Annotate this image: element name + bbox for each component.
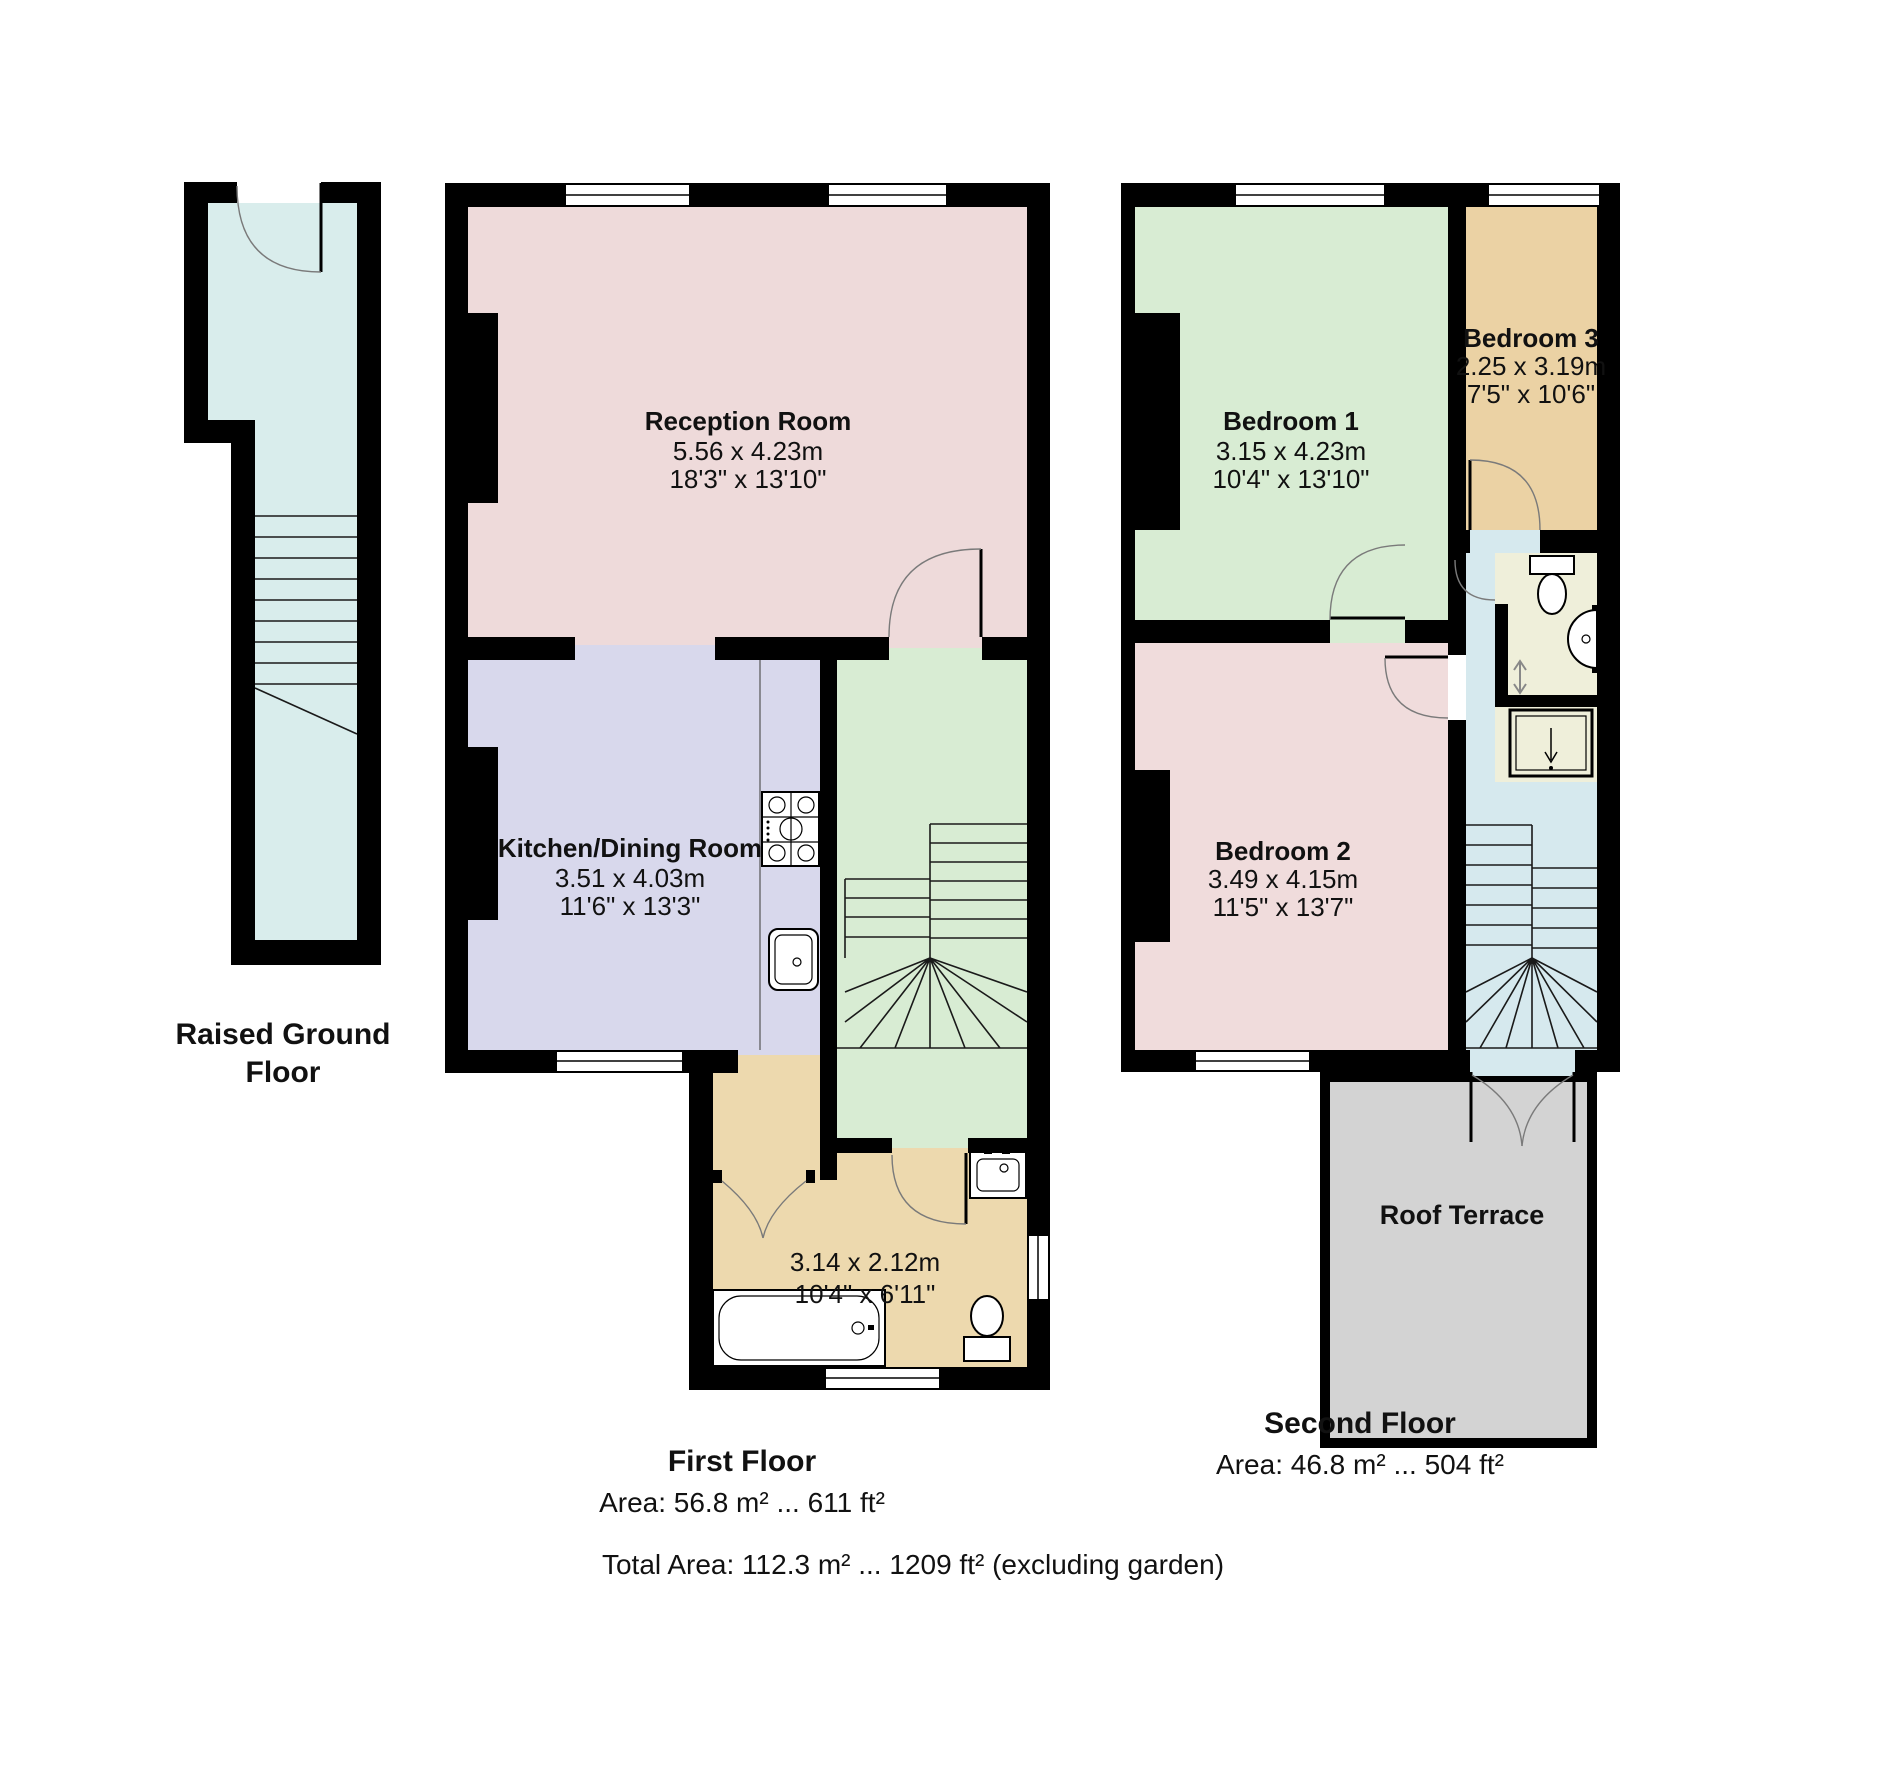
kitchen-label: Kitchen/Dining Room bbox=[498, 833, 762, 863]
bedroom2-dim-m: 3.49 x 4.15m bbox=[1208, 864, 1358, 894]
window-bathroom-side bbox=[1028, 1235, 1049, 1300]
second-floor-label: Second Floor bbox=[1264, 1407, 1456, 1440]
bedroom2-label: Bedroom 2 bbox=[1215, 836, 1351, 866]
window-reception-2 bbox=[828, 184, 947, 206]
hallway-floor bbox=[208, 203, 357, 940]
bedroom3-dim-ft: 7'5" x 10'6" bbox=[1467, 379, 1595, 409]
reception-room-label: Reception Room bbox=[645, 406, 852, 436]
window-bathroom-bottom bbox=[825, 1368, 940, 1389]
first-floor-label: First Floor bbox=[668, 1445, 817, 1478]
first-floor-area: Area: 56.8 m² ... 611 ft² bbox=[599, 1487, 885, 1518]
bedroom3-dim-m: 2.25 x 3.19m bbox=[1456, 351, 1606, 381]
kitchen-dim-ft: 11'6" x 13'3" bbox=[560, 891, 701, 921]
roof-terrace-floor bbox=[1325, 1077, 1592, 1443]
window-bedroom2 bbox=[1195, 1051, 1310, 1071]
floorplan-drawing: Reception Room 5.56 x 4.23m 18'3" x 13'1… bbox=[0, 0, 1898, 1775]
window-bedroom3 bbox=[1488, 184, 1600, 206]
roof-terrace-label: Roof Terrace bbox=[1380, 1200, 1545, 1230]
floorplan-first-floor bbox=[445, 183, 1050, 1390]
kitchen-dim-m: 3.51 x 4.03m bbox=[555, 863, 705, 893]
floorplan-raised-ground bbox=[184, 182, 381, 965]
bathroom1-dim-ft: 10'4" x 6'11" bbox=[795, 1279, 936, 1309]
terrace-threshold bbox=[1470, 1050, 1575, 1076]
raised-ground-label-line1: Raised Ground bbox=[175, 1018, 390, 1051]
raised-ground-label-line2: Floor bbox=[246, 1056, 321, 1089]
window-reception-1 bbox=[565, 184, 690, 206]
bedroom1-dim-m: 3.15 x 4.23m bbox=[1216, 436, 1366, 466]
reception-room-dim-m: 5.56 x 4.23m bbox=[673, 436, 823, 466]
total-area-label: Total Area: 112.3 m² ... 1209 ft² (exclu… bbox=[602, 1549, 1224, 1580]
window-bedroom1 bbox=[1235, 184, 1385, 206]
bathroom1-dim-m: 3.14 x 2.12m bbox=[790, 1247, 940, 1277]
window-kitchen bbox=[556, 1051, 683, 1072]
floorplan-page: Reception Room 5.56 x 4.23m 18'3" x 13'1… bbox=[0, 0, 1898, 1775]
kitchen-sink-icon bbox=[769, 929, 818, 990]
reception-room-dim-ft: 18'3" x 13'10" bbox=[669, 464, 826, 494]
bathroom-sink-icon bbox=[970, 1147, 1026, 1198]
bedroom2-dim-ft: 11'5" x 13'7" bbox=[1213, 892, 1354, 922]
stove-icon bbox=[762, 792, 819, 866]
bedroom1-dim-ft: 10'4" x 13'10" bbox=[1212, 464, 1369, 494]
bedroom1-label: Bedroom 1 bbox=[1223, 406, 1359, 436]
second-floor-area: Area: 46.8 m² ... 504 ft² bbox=[1216, 1449, 1504, 1480]
bedroom3-label: Bedroom 3 bbox=[1463, 323, 1599, 353]
